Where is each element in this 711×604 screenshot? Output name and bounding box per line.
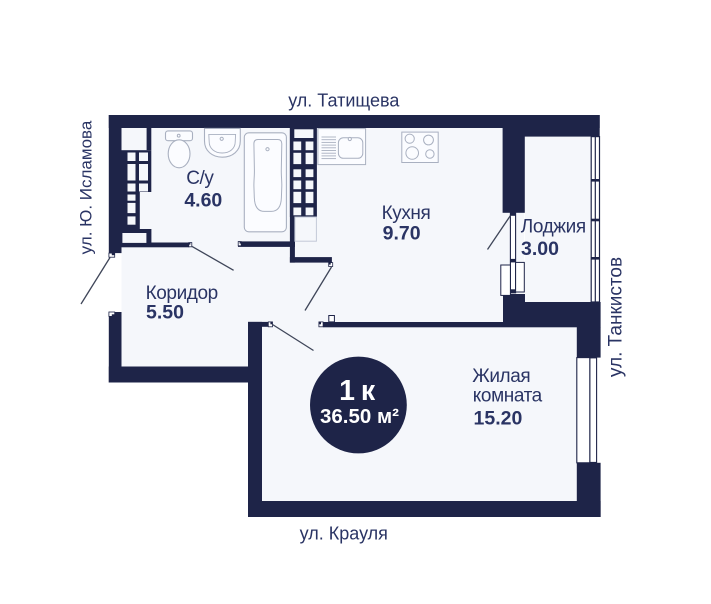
svg-text:комната: комната <box>473 386 543 407</box>
svg-text:Кухня: Кухня <box>382 203 431 224</box>
svg-text:С/у: С/у <box>186 168 214 189</box>
svg-text:15.20: 15.20 <box>474 408 523 430</box>
svg-text:5.50: 5.50 <box>146 302 184 324</box>
svg-text:9.70: 9.70 <box>383 223 421 245</box>
svg-text:Жилая: Жилая <box>472 366 530 387</box>
svg-text:ул. Ю. Исламова: ул. Ю. Исламова <box>76 120 95 254</box>
svg-text:1 к: 1 к <box>339 375 376 407</box>
svg-text:4.60: 4.60 <box>184 190 222 212</box>
svg-text:ул. Крауля: ул. Крауля <box>300 524 388 544</box>
svg-text:Лоджия: Лоджия <box>521 217 586 238</box>
svg-text:ул. Татищева: ул. Татищева <box>288 91 400 111</box>
svg-text:3.00: 3.00 <box>521 238 559 260</box>
svg-text:36.50 м²: 36.50 м² <box>320 405 399 428</box>
svg-text:ул. Танкистов: ул. Танкистов <box>605 257 626 377</box>
